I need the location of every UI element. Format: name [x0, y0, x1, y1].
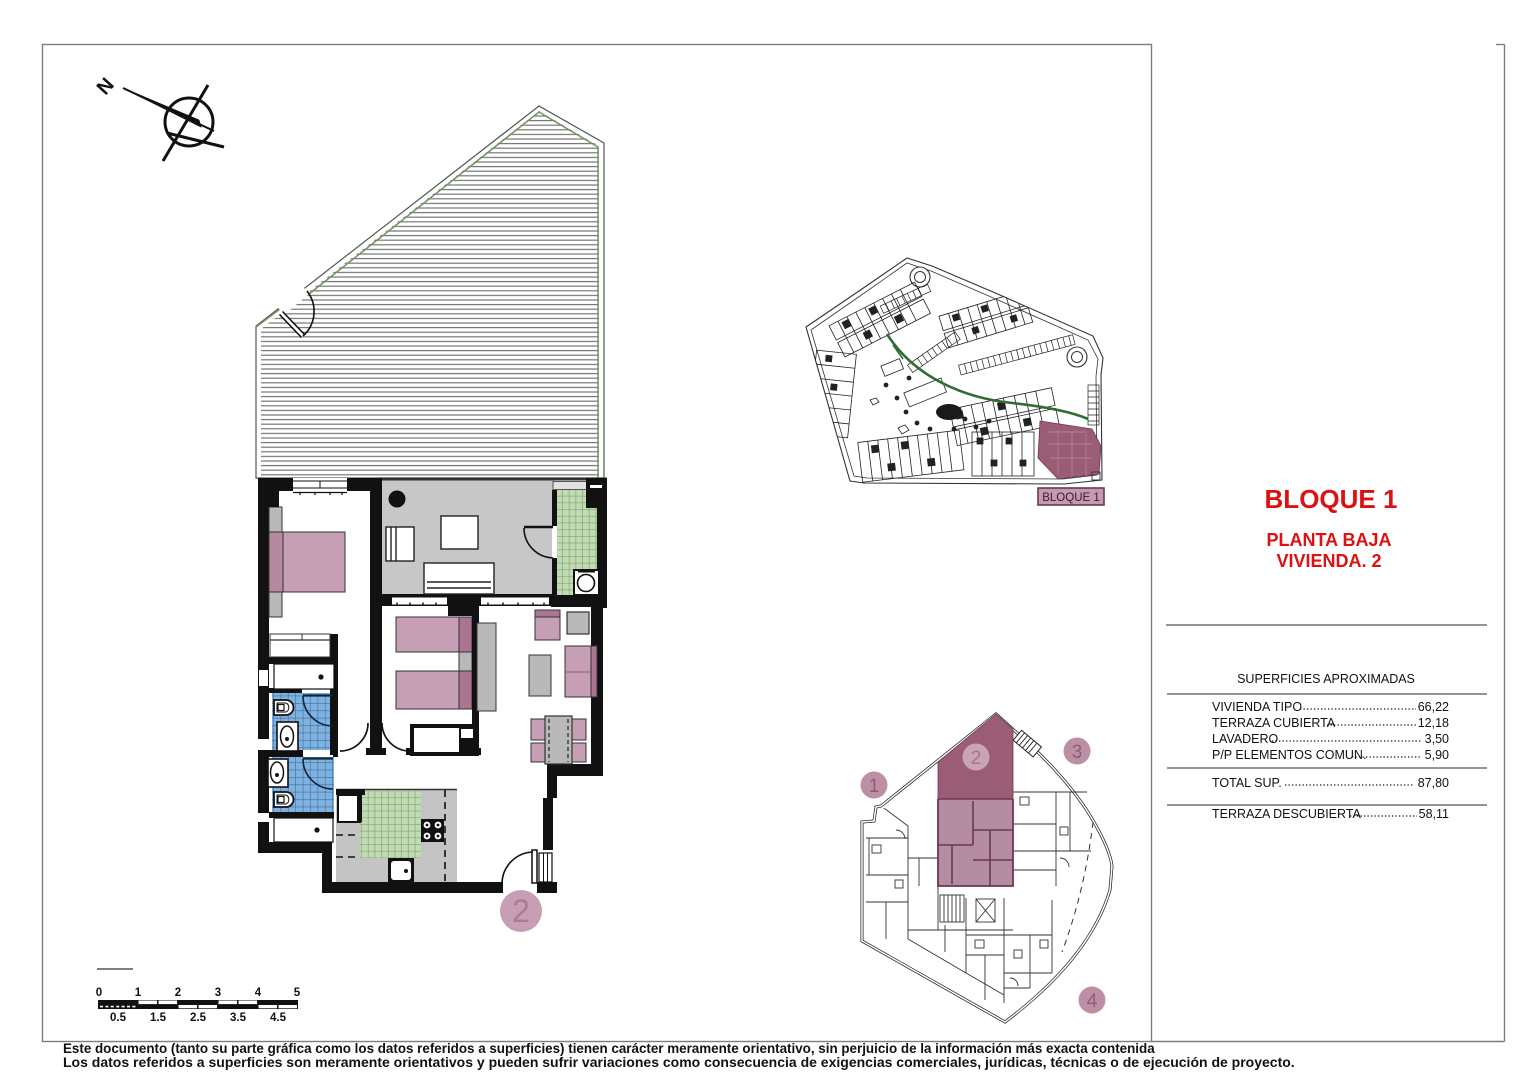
- svg-text:3: 3: [1072, 742, 1083, 763]
- svg-text:P/P ELEMENTOS COMUN.: P/P ELEMENTOS COMUN.: [1212, 748, 1366, 762]
- svg-text:Los datos referidos a superfic: Los datos referidos a superficies son me…: [63, 1054, 1295, 1070]
- svg-text:66,22: 66,22: [1418, 700, 1449, 714]
- svg-text:4: 4: [255, 987, 262, 999]
- svg-text:5: 5: [294, 987, 301, 999]
- svg-text:VIVIENDA. 2: VIVIENDA. 2: [1276, 551, 1381, 571]
- svg-text:TERRAZA DESCUBIERTA: TERRAZA DESCUBIERTA: [1212, 807, 1362, 821]
- svg-text:2.5: 2.5: [190, 1012, 207, 1024]
- svg-text:LAVADERO: LAVADERO: [1212, 732, 1279, 746]
- svg-text:3: 3: [215, 987, 221, 999]
- svg-text:87,80: 87,80: [1418, 776, 1449, 790]
- svg-text:3.5: 3.5: [230, 1012, 247, 1024]
- svg-text:TERRAZA CUBIERTA: TERRAZA CUBIERTA: [1212, 716, 1336, 730]
- svg-text:4: 4: [1087, 991, 1098, 1012]
- svg-text:1: 1: [135, 987, 142, 999]
- svg-text:2: 2: [971, 748, 982, 769]
- svg-text:BLOQUE 1: BLOQUE 1: [1042, 492, 1100, 504]
- svg-text:TOTAL SUP.: TOTAL SUP.: [1212, 776, 1282, 790]
- svg-text:2: 2: [512, 893, 530, 929]
- svg-text:1.5: 1.5: [150, 1012, 167, 1024]
- svg-text:2: 2: [175, 987, 181, 999]
- svg-text:5,90: 5,90: [1425, 748, 1449, 762]
- svg-text:3,50: 3,50: [1425, 732, 1449, 746]
- svg-text:12,18: 12,18: [1418, 716, 1449, 730]
- svg-text:58,11: 58,11: [1419, 807, 1449, 821]
- svg-text:N: N: [93, 74, 119, 99]
- svg-text:0.5: 0.5: [110, 1012, 127, 1024]
- svg-text:BLOQUE 1: BLOQUE 1: [1265, 484, 1398, 514]
- svg-text:0: 0: [96, 987, 102, 999]
- svg-text:1: 1: [869, 776, 880, 797]
- svg-text:VIVIENDA TIPO: VIVIENDA TIPO: [1212, 700, 1302, 714]
- svg-text:SUPERFICIES APROXIMADAS: SUPERFICIES APROXIMADAS: [1237, 672, 1415, 686]
- svg-text:PLANTA BAJA: PLANTA BAJA: [1267, 530, 1392, 550]
- svg-text:4.5: 4.5: [270, 1012, 287, 1024]
